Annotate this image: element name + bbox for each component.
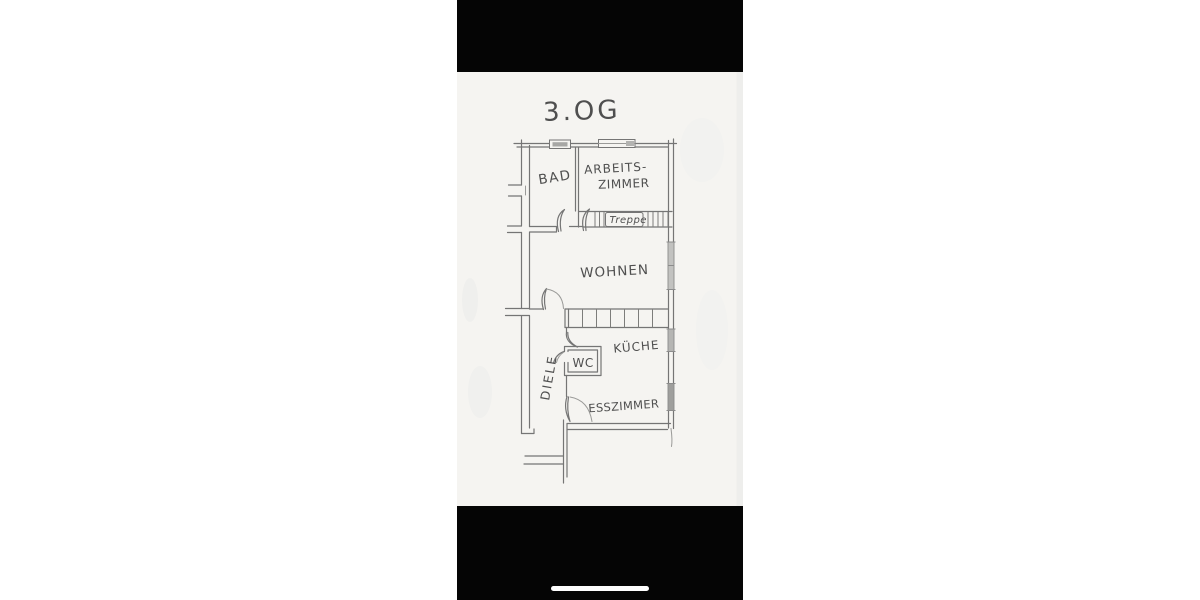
paper-texture (462, 72, 743, 506)
room-label-arbeitszimmer-line1: ARBEITS- (584, 160, 648, 177)
floor-plan-drawing: 3.OG (457, 72, 743, 506)
room-label-treppe: Treppe (610, 215, 647, 226)
right-wall-windows (667, 242, 676, 411)
room-label-esszimmer: ESSZIMMER (588, 397, 660, 416)
window-kueche-icon (668, 329, 674, 352)
window-esszimmer-icon (668, 384, 674, 411)
window-arbeitszimmer-icon (626, 141, 634, 146)
room-label-wohnen: WOHNEN (580, 262, 650, 282)
door-arc-wohnen (542, 289, 563, 310)
door-arc-landing-left (557, 210, 564, 232)
window-bad-icon (553, 142, 568, 146)
bottom-bar-black (457, 506, 743, 600)
staircase: Treppe (579, 212, 673, 228)
room-label-diele: DIELE (537, 354, 560, 402)
page-canvas: 3.OG (0, 0, 1200, 600)
kitchen-counter (565, 309, 668, 328)
room-label-kueche: KÜCHE (613, 336, 661, 356)
home-indicator (551, 586, 649, 591)
room-label-wc: WC (573, 356, 594, 370)
room-label-arbeitszimmer-line2: ZIMMER (598, 176, 650, 192)
screenshot-strip: 3.OG (457, 0, 743, 600)
plan-title: 3.OG (543, 95, 621, 128)
outer-walls (506, 139, 677, 483)
room-label-bad: BAD (537, 167, 572, 188)
status-bar-black-top (457, 0, 743, 72)
door-arc-kueche (566, 328, 577, 348)
